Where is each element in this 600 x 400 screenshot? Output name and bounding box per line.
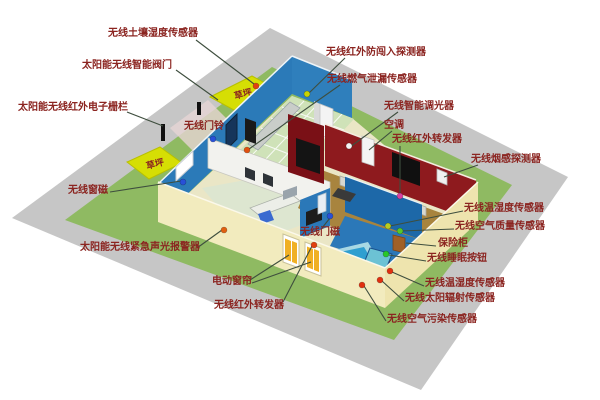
dot-soil-moisture bbox=[253, 83, 259, 89]
divider-wall bbox=[288, 114, 324, 184]
label-air-pollution-sensor: 无线空气污染传感器 bbox=[387, 314, 477, 326]
label-air-conditioner: 空调 bbox=[384, 120, 404, 132]
label-intrusion-detector: 无线红外防闯入探测器 bbox=[326, 47, 426, 59]
dot-doorbell bbox=[210, 136, 216, 142]
counter-appliance bbox=[245, 118, 256, 144]
label-window-magnet: 无线窗磁 bbox=[68, 185, 108, 197]
label-smart-dimmer: 无线智能调光器 bbox=[384, 101, 454, 113]
label-ir-repeater-living: 无线红外转发器 bbox=[392, 134, 462, 146]
label-temp-humidity-1: 无线温湿度传感器 bbox=[464, 203, 544, 215]
fence-post bbox=[197, 102, 201, 115]
dot-temp-humidity-2 bbox=[387, 268, 393, 274]
label-door-magnet: 无线门磁 bbox=[300, 227, 340, 239]
dot-gas-leak bbox=[244, 147, 250, 153]
dot-sleep-button bbox=[383, 251, 389, 257]
dot-ir-repeater-front bbox=[311, 242, 317, 248]
label-emergency-alarm: 太阳能无线紧急声光报警器 bbox=[80, 242, 200, 254]
air-conditioner-unit bbox=[362, 136, 374, 166]
label-temp-humidity-2: 无线温湿度传感器 bbox=[425, 278, 505, 290]
dot-intrusion bbox=[304, 91, 310, 97]
label-electric-curtain: 电动窗帘 bbox=[212, 276, 252, 288]
label-infrared-electronic-fence: 太阳能无线红外电子栅栏 bbox=[18, 102, 128, 114]
dot-solar-radiation bbox=[377, 277, 383, 283]
label-gas-leak-sensor: 无线燃气泄漏传感器 bbox=[327, 74, 417, 86]
label-smoke-detector: 无线烟感探测器 bbox=[471, 154, 541, 166]
label-soil-moisture-sensor: 无线土壤湿度传感器 bbox=[108, 28, 198, 40]
label-safe-box: 保险柜 bbox=[438, 238, 468, 250]
dot-door-magnet bbox=[327, 213, 333, 219]
label-sleep-button: 无线睡眠按钮 bbox=[427, 253, 487, 265]
dot-dimmer bbox=[346, 143, 352, 149]
label-ir-repeater-front: 无线红外转发器 bbox=[214, 300, 284, 312]
label-air-quality-sensor: 无线空气质量传感器 bbox=[455, 221, 545, 233]
smart-home-diagram: 草坪 草坪 bbox=[0, 0, 600, 400]
dot-air-quality bbox=[397, 228, 403, 234]
dot-alarm bbox=[221, 227, 227, 233]
label-solar-radiation-sensor: 无线太阳辐射传感器 bbox=[405, 293, 495, 305]
dot-air-pollution bbox=[359, 282, 365, 288]
dot-window-magnet bbox=[180, 179, 186, 185]
label-doorbell: 无线门铃 bbox=[184, 121, 224, 133]
fence-post bbox=[161, 124, 165, 141]
curtain-window bbox=[283, 234, 299, 268]
dot-temp-humidity-1 bbox=[385, 223, 391, 229]
study-door bbox=[318, 193, 326, 214]
label-smart-valve: 太阳能无线智能阀门 bbox=[82, 60, 172, 72]
dot-ir-repeater-living bbox=[397, 193, 403, 199]
